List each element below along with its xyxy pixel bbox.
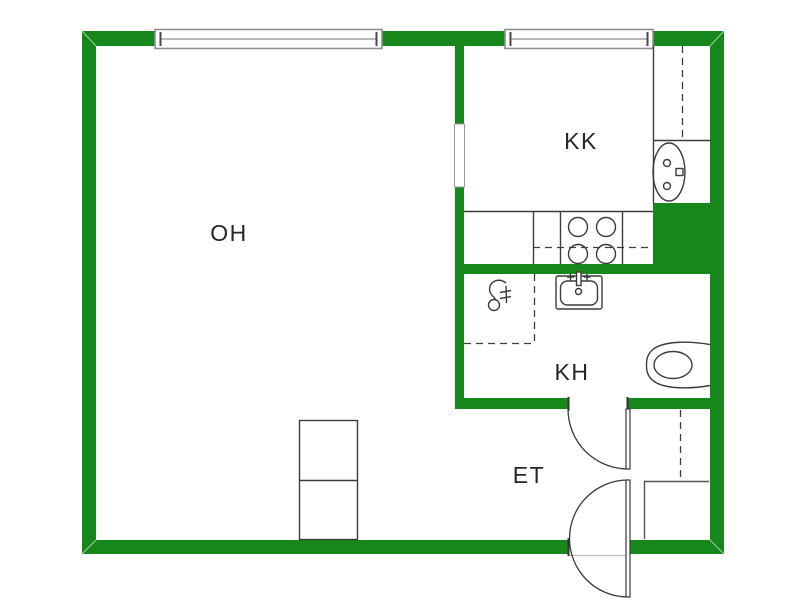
room-label-kh: KH <box>555 359 590 385</box>
kitchen-side-counter <box>653 46 710 203</box>
room-label-oh: OH <box>210 220 248 246</box>
kitchen-counter <box>464 211 653 264</box>
kitchen-solid-block <box>653 203 710 274</box>
hallway-closet <box>645 410 710 539</box>
room-labels: OH KK KH ET <box>210 128 598 488</box>
wall-left <box>82 31 96 554</box>
wall-divider-lower <box>455 187 464 409</box>
wall-bottom-left-segment <box>82 540 568 554</box>
window-living-room <box>155 30 382 49</box>
living-room-wardrobe <box>300 421 358 540</box>
door-swing-arc <box>570 480 628 597</box>
room-label-et: ET <box>513 462 545 488</box>
door-leaf <box>626 480 630 597</box>
shower-area-boundary <box>464 274 535 344</box>
wall-kh-bottom-right <box>628 398 710 409</box>
kitchen-sink-icon <box>653 143 685 201</box>
burner-3 <box>569 245 588 264</box>
wall-divider-upper <box>455 46 464 124</box>
floor-plan-drawing: OH KK KH ET <box>0 0 800 600</box>
bathroom-door <box>568 397 630 469</box>
wall-right <box>710 31 724 554</box>
wall-bottom-right-segment <box>628 540 724 554</box>
floor-drain-shower-icon <box>489 280 512 310</box>
door-swing-arc <box>568 409 628 469</box>
room-label-kk: KK <box>564 128 598 154</box>
wall-kh-bottom-left <box>455 398 568 409</box>
toilet-icon <box>647 342 711 388</box>
window-kitchen <box>505 30 653 49</box>
faucet-mount <box>676 169 683 176</box>
washbasin-icon <box>556 272 602 309</box>
stove-icon <box>569 218 616 264</box>
entrance-door <box>568 480 630 597</box>
burner-2 <box>597 218 616 237</box>
door-leaf <box>626 409 630 469</box>
walls <box>82 31 724 554</box>
floor-plan: OH KK KH ET <box>0 0 800 600</box>
burner-1 <box>569 218 588 237</box>
faucet-icon <box>577 272 582 286</box>
wall-corner-miters <box>82 31 724 554</box>
doorway-oh-kk <box>455 124 465 187</box>
